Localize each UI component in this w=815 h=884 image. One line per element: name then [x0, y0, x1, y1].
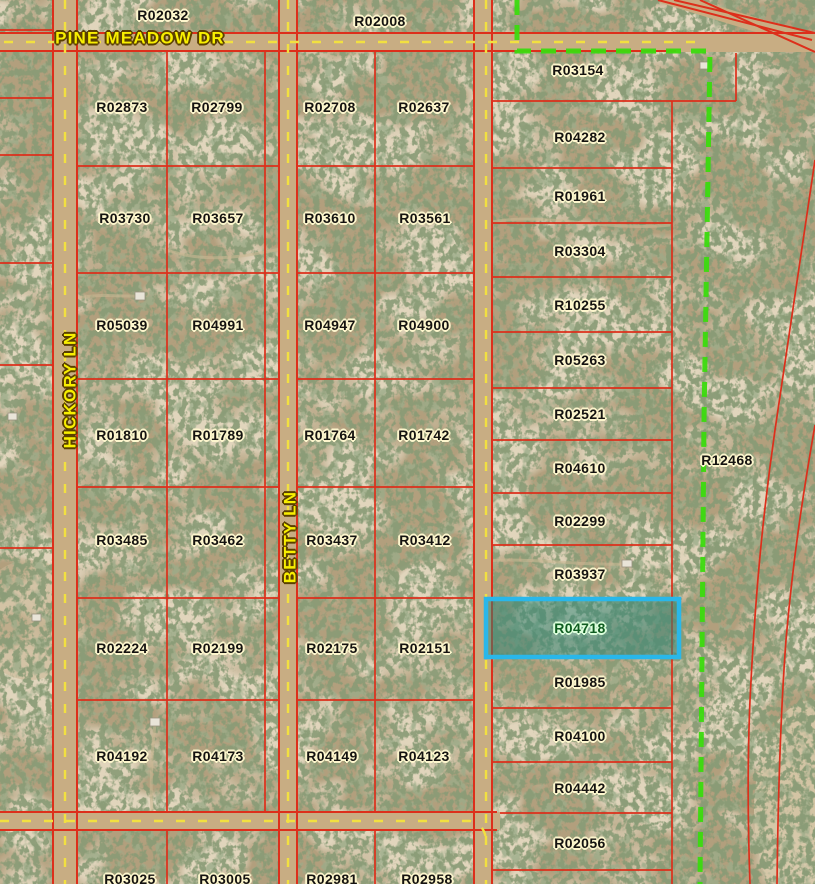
parcel-label-r04100[interactable]: R04100 [554, 729, 605, 743]
parcel-label-r04947[interactable]: R04947 [304, 318, 355, 332]
parcel-label-r04149[interactable]: R04149 [306, 749, 357, 763]
parcel-label-r02032[interactable]: R02032 [137, 8, 188, 22]
parcel-label-r04900[interactable]: R04900 [398, 318, 449, 332]
parcel-label-r03485[interactable]: R03485 [96, 533, 147, 547]
parcel-label-r02637[interactable]: R02637 [398, 100, 449, 114]
parcel-label-r04442[interactable]: R04442 [554, 781, 605, 795]
parcel-label-r02521[interactable]: R02521 [554, 407, 605, 421]
parcel-label-r04991[interactable]: R04991 [192, 318, 243, 332]
parcel-label-r10255[interactable]: R10255 [554, 298, 605, 312]
parcel-label-r02199[interactable]: R02199 [192, 641, 243, 655]
parcel-label-r02224[interactable]: R02224 [96, 641, 147, 655]
parcel-label-r02981[interactable]: R02981 [306, 872, 357, 884]
parcel-label-r02175[interactable]: R02175 [306, 641, 357, 655]
parcel-label-r01985[interactable]: R01985 [554, 675, 605, 689]
parcel-label-r03025[interactable]: R03025 [104, 872, 155, 884]
parcel-label-r04610[interactable]: R04610 [554, 461, 605, 475]
parcel-label-r04192[interactable]: R04192 [96, 749, 147, 763]
parcel-label-r02008[interactable]: R02008 [354, 14, 405, 28]
parcel-label-r03937[interactable]: R03937 [554, 567, 605, 581]
road-label-betty-ln: BETTY LN [282, 491, 299, 583]
parcel-label-r02958[interactable]: R02958 [401, 872, 452, 884]
parcel-label-r03304[interactable]: R03304 [554, 244, 605, 258]
parcel-label-r12468[interactable]: R12468 [701, 453, 752, 467]
parcel-label-r05263[interactable]: R05263 [554, 353, 605, 367]
parcel-label-r02151[interactable]: R02151 [399, 641, 450, 655]
parcel-label-r03657[interactable]: R03657 [192, 211, 243, 225]
parcel-label-r04718[interactable]: R04718 [554, 621, 605, 635]
parcel-label-r03005[interactable]: R03005 [199, 872, 250, 884]
road-label-pine-meadow-dr: PINE MEADOW DR [55, 30, 225, 47]
parcel-label-r03561[interactable]: R03561 [399, 211, 450, 225]
parcel-label-r04173[interactable]: R04173 [192, 749, 243, 763]
parcel-label-r03462[interactable]: R03462 [192, 533, 243, 547]
parcel-label-r02799[interactable]: R02799 [191, 100, 242, 114]
road-label-hickory-ln: HICKORY LN [62, 332, 79, 449]
parcel-label-r02708[interactable]: R02708 [304, 100, 355, 114]
parcel-label-r04123[interactable]: R04123 [398, 749, 449, 763]
parcel-label-r01742[interactable]: R01742 [398, 428, 449, 442]
parcel-label-r03437[interactable]: R03437 [306, 533, 357, 547]
parcel-label-r03412[interactable]: R03412 [399, 533, 450, 547]
parcel-label-r01789[interactable]: R01789 [192, 428, 243, 442]
map-canvas[interactable]: R02032R02008R02873R02799R02708R02637R037… [0, 0, 815, 884]
parcel-label-r03610[interactable]: R03610 [304, 211, 355, 225]
parcel-label-r02299[interactable]: R02299 [554, 514, 605, 528]
parcel-label-r02056[interactable]: R02056 [554, 836, 605, 850]
parcel-label-r01810[interactable]: R01810 [96, 428, 147, 442]
parcel-label-r03730[interactable]: R03730 [99, 211, 150, 225]
parcel-label-r01961[interactable]: R01961 [554, 189, 605, 203]
parcel-label-r02873[interactable]: R02873 [96, 100, 147, 114]
parcel-label-r03154[interactable]: R03154 [552, 63, 603, 77]
parcel-label-r04282[interactable]: R04282 [554, 130, 605, 144]
parcel-label-r05039[interactable]: R05039 [96, 318, 147, 332]
parcel-label-r01764[interactable]: R01764 [304, 428, 355, 442]
